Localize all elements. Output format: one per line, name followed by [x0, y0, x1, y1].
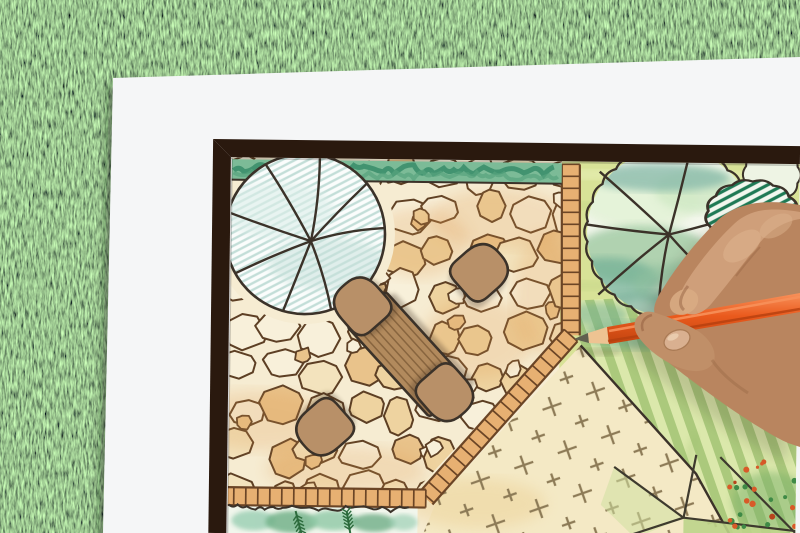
photograph-garden-plan: [0, 0, 800, 533]
scene-svg: [0, 0, 800, 533]
bottom-planting-bed: [227, 504, 417, 533]
pencil-shadow: [578, 348, 622, 356]
